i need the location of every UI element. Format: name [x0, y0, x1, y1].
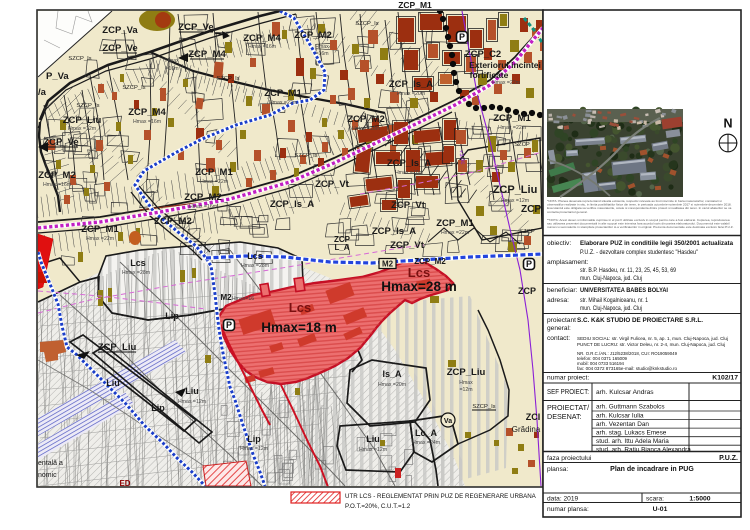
svg-text:P.U.Z. - dezvoltare complex st: P.U.Z. - dezvoltare complex studentesc "… — [580, 249, 698, 256]
svg-text:mun. Cluj-Napoca, jud. Cluj: mun. Cluj-Napoca, jud. Cluj — [580, 305, 642, 312]
svg-text:plansa:: plansa: — [547, 466, 568, 473]
svg-text:S.C. K&K STUDIO DE PROIECTARE: S.C. K&K STUDIO DE PROIECTARE S.R.L. — [577, 317, 703, 324]
svg-text:U-01: U-01 — [653, 506, 668, 513]
svg-text:N: N — [723, 117, 732, 131]
svg-text:mun. Cluj-Napoca, jud. Cluj: mun. Cluj-Napoca, jud. Cluj — [580, 275, 642, 282]
svg-text:scara:: scara: — [646, 496, 664, 503]
svg-text:Elaborare PUZ in conditiile le: Elaborare PUZ in conditiile legii 350/20… — [580, 240, 733, 247]
svg-text:numar proiect:: numar proiect: — [547, 375, 589, 382]
svg-text:beneficiar:: beneficiar: — [547, 287, 578, 294]
svg-text:contacta proiectantul general.: contacta proiectantul general. — [547, 210, 588, 214]
svg-text:numai cu semnaturile in stampi: numai cu semnaturile in stampilele proie… — [547, 225, 734, 229]
svg-text:PROIECTAT/: PROIECTAT/ — [547, 403, 589, 412]
svg-text:SEDIU SOCIAL: str. Virgil Fuli: SEDIU SOCIAL: str. Virgil Fulicea, nr. 5… — [577, 336, 728, 341]
svg-text:fax: 004 0372 873165e-mail: st: fax: 004 0372 873165e-mail: studio@knkst… — [577, 366, 677, 371]
svg-text:UNIVERSITATEA BABES BOLYAI: UNIVERSITATEA BABES BOLYAI — [580, 287, 668, 294]
svg-text:stud. arh. Ittu Adela Maria: stud. arh. Ittu Adela Maria — [596, 438, 669, 445]
svg-text:Plan de incadrare in PUG: Plan de incadrare in PUG — [610, 466, 694, 473]
svg-text:data: 2019: data: 2019 — [547, 496, 578, 503]
svg-text:DESENAT:: DESENAT: — [547, 412, 582, 421]
svg-text:K102/17: K102/17 — [712, 375, 738, 382]
svg-text:str. B.P. Hasdeu, nr. 11, 23,: str. B.P. Hasdeu, nr. 11, 23, 25, 45, 53… — [580, 267, 676, 274]
svg-text:arh. stag. Lukacs Emese: arh. stag. Lukacs Emese — [596, 429, 667, 436]
svg-text:obiectiv:: obiectiv: — [547, 240, 571, 247]
svg-text:str. Mihail Kogalniceanu, nr.: str. Mihail Kogalniceanu, nr. 1 — [580, 297, 648, 304]
svg-text:arh. Vezentan Dan: arh. Vezentan Dan — [596, 421, 649, 428]
svg-text:proiectant: proiectant — [547, 317, 576, 324]
svg-text:numar plansa:: numar plansa: — [547, 506, 589, 513]
svg-text:arh. Kulcsar Iulia: arh. Kulcsar Iulia — [596, 412, 644, 419]
svg-text:amplasament:: amplasament: — [547, 259, 589, 266]
svg-text:arh. Kulcsar Andras: arh. Kulcsar Andras — [596, 389, 654, 396]
svg-text:SEF PROIECT:: SEF PROIECT: — [547, 387, 589, 396]
svg-text:P.U.Z.: P.U.Z. — [719, 455, 738, 462]
svg-text:general:: general: — [547, 325, 571, 332]
svg-text:stud. arh. Ratiu Bianca Alexan: stud. arh. Ratiu Bianca Alexandra — [596, 446, 691, 453]
svg-text:1:5000: 1:5000 — [689, 496, 710, 503]
svg-text:PUNCT DE LUCRU: str. Victor De: PUNCT DE LUCRU: str. Victor Deleu, nr. 2… — [577, 342, 725, 347]
svg-text:adresa:: adresa: — [547, 297, 569, 304]
svg-text:faza proiectului: faza proiectului — [547, 455, 592, 462]
svg-text:arh. Guttmann Szabolcs: arh. Guttmann Szabolcs — [596, 404, 665, 411]
svg-text:contact:: contact: — [547, 335, 570, 342]
